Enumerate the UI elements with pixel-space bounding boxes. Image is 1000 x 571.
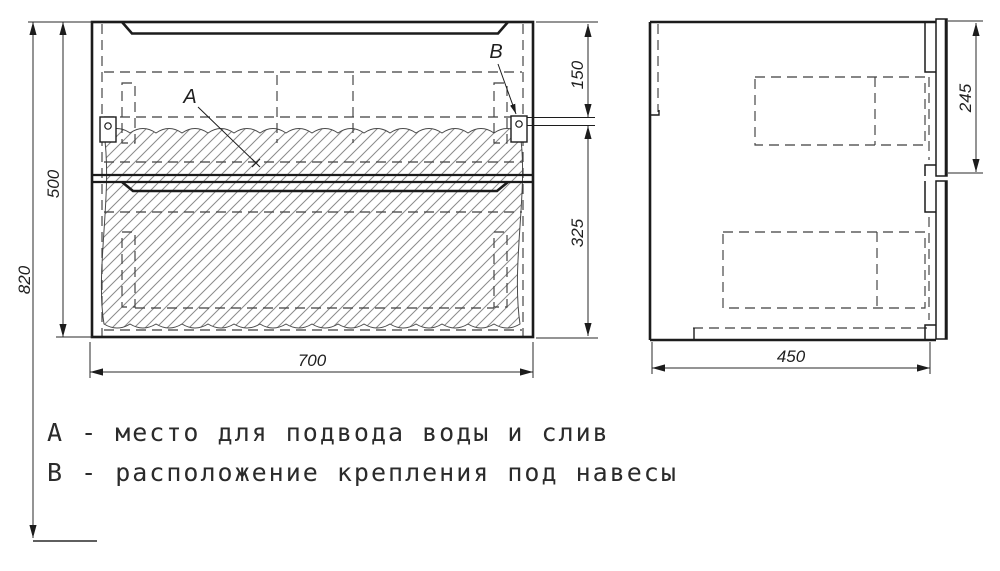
dim-width: 700 xyxy=(298,351,327,370)
hatch-area-a xyxy=(101,129,522,329)
dim-cabinet-height: 500 xyxy=(44,169,63,198)
legend-line-a: А - место для подвода воды и слив xyxy=(47,418,610,447)
callout-a: А xyxy=(182,86,196,108)
dim-top-to-mount: 150 xyxy=(568,60,587,89)
dim-depth: 450 xyxy=(777,347,806,366)
legend-line-b: В - расположение крепления под навесы xyxy=(47,458,678,487)
technical-drawing: А В xyxy=(0,0,1000,571)
callout-b: В xyxy=(489,41,502,63)
dim-mount-to-bottom: 325 xyxy=(568,218,587,247)
mount-bracket-left xyxy=(100,117,116,142)
dim-overall-height: 820 xyxy=(15,265,34,294)
dim-drawer-front-height: 245 xyxy=(956,83,975,113)
